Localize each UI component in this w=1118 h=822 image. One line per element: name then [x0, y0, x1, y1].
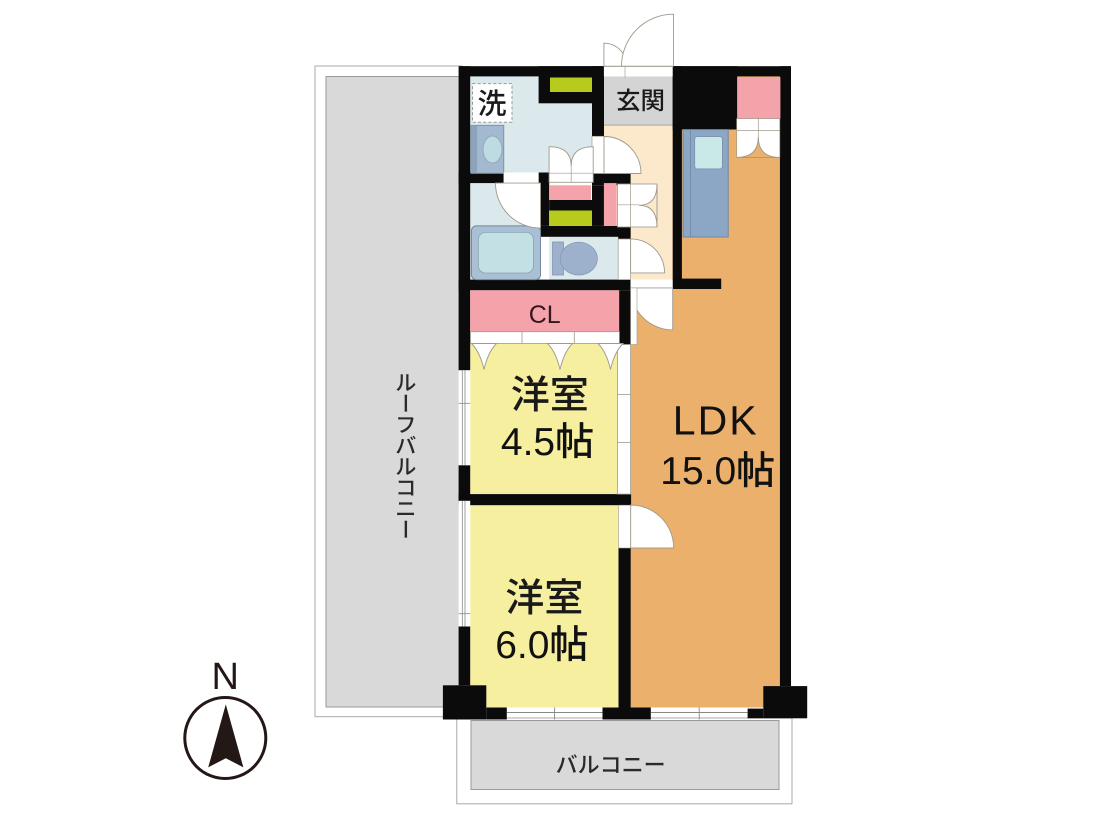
svg-text:4.5: 4.5: [501, 421, 555, 464]
svg-text:15.0: 15.0: [660, 450, 736, 493]
svg-text:6.0: 6.0: [495, 624, 549, 667]
svg-text:CL: CL: [529, 301, 561, 329]
svg-text:LDK: LDK: [673, 398, 759, 444]
svg-text:N: N: [212, 656, 239, 698]
